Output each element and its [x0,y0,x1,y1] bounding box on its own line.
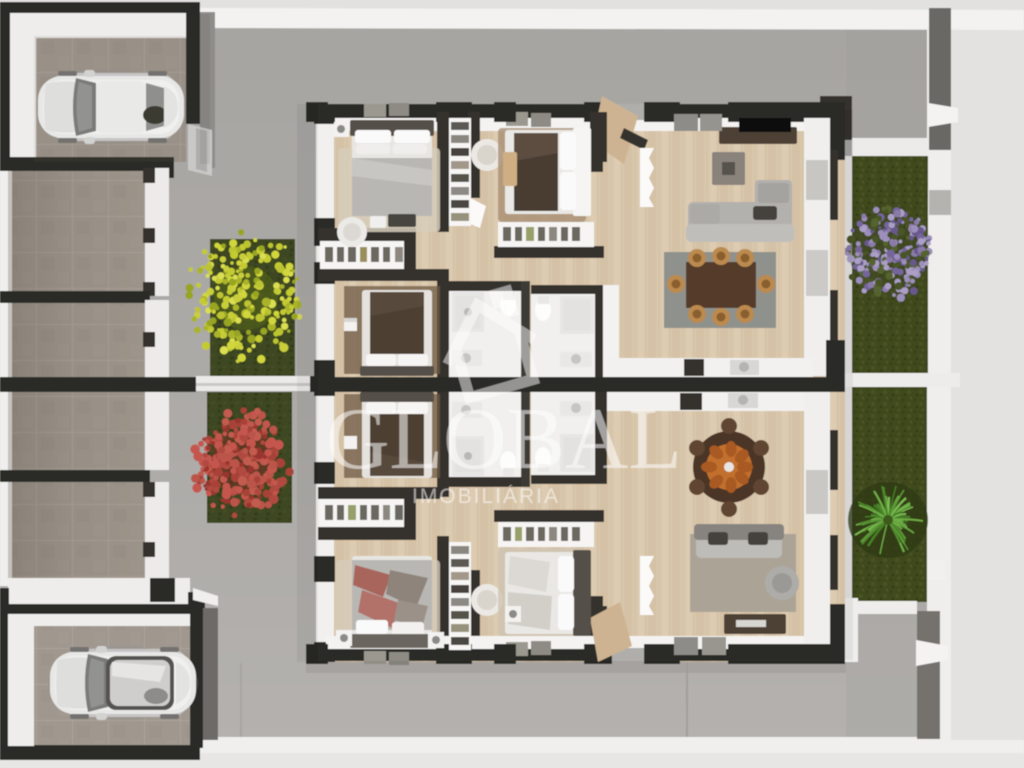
svg-text:IMOBILIÁRIA: IMOBILIÁRIA [412,485,560,508]
svg-text:GLOBAL: GLOBAL [326,391,682,488]
